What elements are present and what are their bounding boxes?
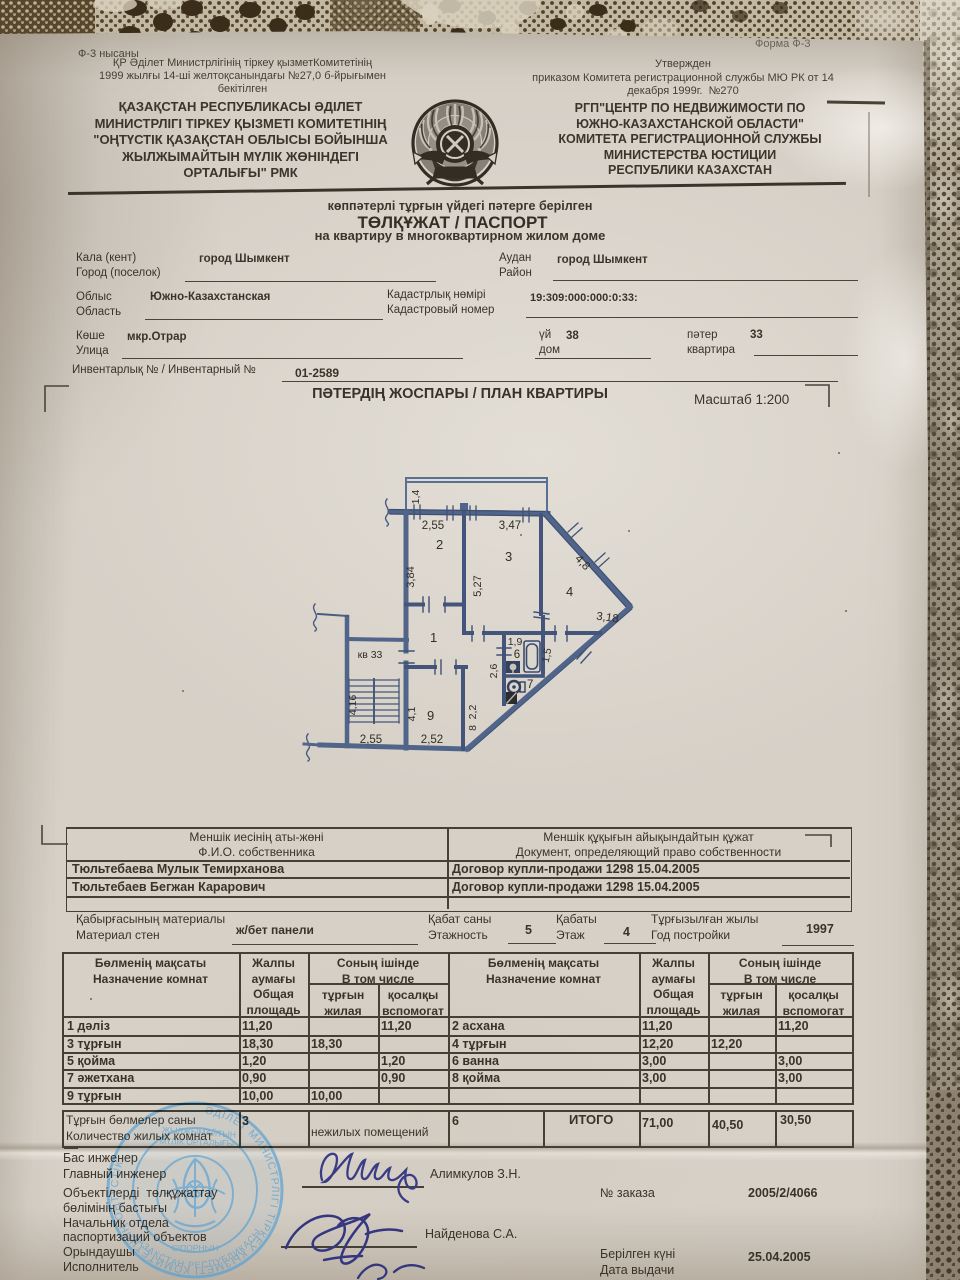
- svg-text:2,52: 2,52: [421, 734, 443, 746]
- svg-text:2,55: 2,55: [360, 734, 382, 746]
- svg-text:4: 4: [566, 584, 573, 599]
- svg-text:2: 2: [436, 537, 443, 552]
- svg-text:3,47: 3,47: [499, 520, 521, 532]
- svg-text:1,4: 1,4: [410, 490, 422, 505]
- svg-text:3,84: 3,84: [405, 566, 417, 587]
- svg-text:1: 1: [430, 630, 437, 645]
- svg-text:2,6: 2,6: [488, 664, 500, 679]
- svg-text:8: 8: [467, 725, 479, 731]
- svg-text:5,27: 5,27: [472, 575, 484, 596]
- svg-text:4,16: 4,16: [347, 695, 359, 716]
- svg-text:1,5: 1,5: [540, 647, 555, 664]
- svg-text:кв 33: кв 33: [358, 649, 383, 661]
- svg-text:3,18: 3,18: [595, 611, 619, 626]
- svg-text:1,9: 1,9: [508, 636, 523, 648]
- svg-text:6: 6: [514, 649, 520, 661]
- svg-text:4,1: 4,1: [406, 707, 418, 722]
- svg-text:2,55: 2,55: [422, 520, 444, 532]
- svg-text:2,2: 2,2: [467, 705, 479, 720]
- svg-text:ҚАЗАҚСТАН: ҚАЗАҚСТАН: [436, 171, 474, 178]
- svg-text:9: 9: [427, 708, 434, 723]
- svg-text:4,8: 4,8: [572, 553, 592, 573]
- svg-text:3: 3: [505, 549, 512, 564]
- svg-text:7: 7: [527, 679, 533, 691]
- svg-text:СІПОРНЫН: СІПОРНЫН: [172, 1243, 219, 1253]
